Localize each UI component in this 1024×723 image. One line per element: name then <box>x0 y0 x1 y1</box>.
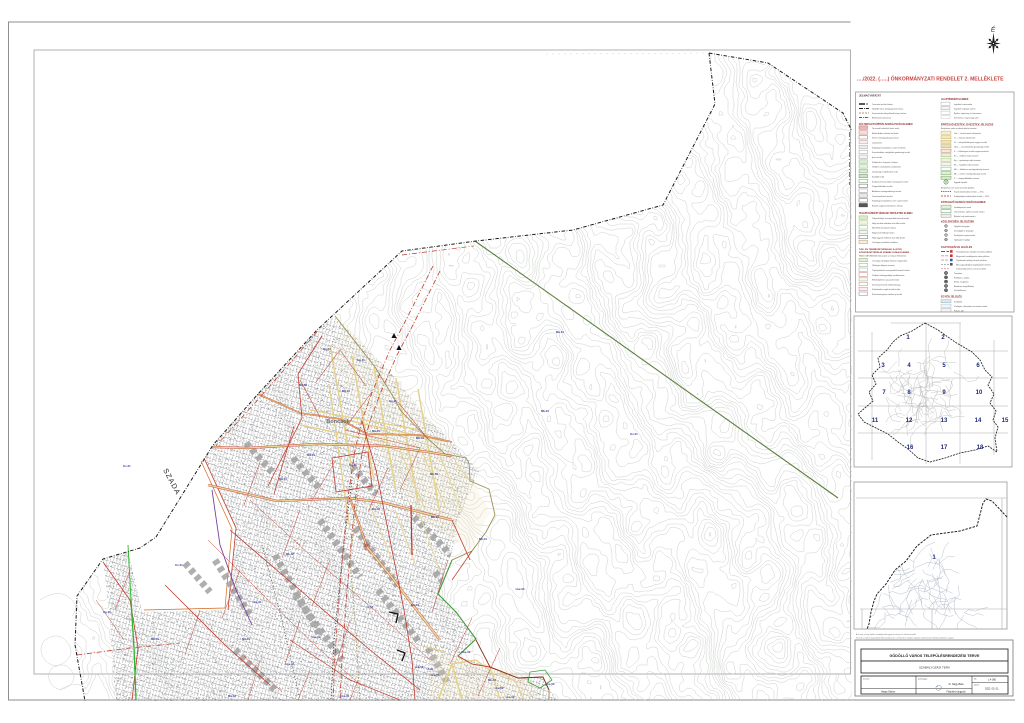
svg-text:Országos műemléki védelem: Országos műemléki védelem <box>872 242 898 244</box>
svg-text:dátum:: dátum: <box>974 684 980 687</box>
svg-text:Mk-01: Mk-01 <box>430 472 438 476</box>
svg-text:Gyűjtőút tengelye: Gyűjtőút tengelye <box>954 225 970 228</box>
svg-text:Lke-01: Lke-01 <box>286 662 295 666</box>
svg-text:Épület, építmény és házszáma: Épület, építmény és házszáma <box>954 112 982 115</box>
svg-text:Lke-02: Lke-02 <box>495 686 504 690</box>
svg-text:Má-01: Má-01 <box>556 330 564 334</box>
svg-text:Mk-01: Mk-01 <box>342 389 350 393</box>
svg-text:12: 12 <box>906 418 913 424</box>
svg-text:Településképi szempontból kiem: Településképi szempontból kiemelt terüle… <box>872 217 909 220</box>
svg-text:Má-01: Má-01 <box>372 429 380 433</box>
svg-text:É: É <box>991 25 996 34</box>
svg-text:Beépítésre nem szánt övezetek: Beépítésre nem szánt övezetek jelölése <box>941 187 974 190</box>
svg-text:14: 14 <box>975 418 982 424</box>
svg-text:Eg-01: Eg-01 <box>103 610 111 614</box>
svg-text:Gksz — kereskedelmi gazdasági: Gksz — kereskedelmi gazdasági terület <box>954 145 990 148</box>
svg-text:16: 16 <box>907 445 914 451</box>
svg-text:TELEPÜLÉSKÉPI VÉDELMI TERÜLETE: TELEPÜLÉSKÉPI VÉDELMI TERÜLETEK ELEMEI <box>859 212 913 215</box>
svg-text:Építési hely határvonala: Építési hely határvonala <box>954 215 976 218</box>
svg-text:Vasútállomás: Vasútállomás <box>954 289 966 292</box>
svg-text:Természetközeli terület: Természetközeli terület <box>872 195 893 198</box>
svg-text:Ingatlan helyrajzi száma: Ingatlan helyrajzi száma <box>954 107 976 110</box>
svg-text:dr. Nagy Béla: dr. Nagy Béla <box>948 683 964 686</box>
svg-text:Különleges beépítésre szánt te: Különleges beépítésre szánt területek <box>872 146 905 149</box>
svg-text:Boncsok: Boncsok <box>326 419 351 425</box>
svg-text:Lf-01: Lf-01 <box>367 605 374 609</box>
svg-text:Ev-01: Ev-01 <box>630 432 638 436</box>
svg-text:Eg-01: Eg-01 <box>323 347 331 351</box>
svg-text:KÖZLEKEDÉSI JELÖLÉSEK: KÖZLEKEDÉSI JELÖLÉSEK <box>941 221 975 224</box>
svg-text:Beépítésre szánt területek épí: Beépítésre szánt területek építési öveze… <box>941 127 977 130</box>
svg-text:1:4 000: 1:4 000 <box>988 679 997 682</box>
svg-text:Szintvonal, magassági adat: Szintvonal, magassági adat <box>954 116 979 119</box>
svg-text:Eg-01: Eg-01 <box>349 463 357 467</box>
svg-text:Tervezési terület határa: Tervezési terület határa <box>872 103 894 106</box>
svg-text:Tervezett belterületi határ mó: Tervezett belterületi határ mód. <box>872 127 900 130</box>
svg-text:Kilátó, magasles: Kilátó, magasles <box>954 281 969 284</box>
svg-text:Védelmi rendeltetésű erdőterül: Védelmi rendeltetésű erdőterület <box>872 166 901 169</box>
svg-text:Vízfolyás, időszakos vízmosás: Vízfolyás, időszakos vízmosás medre <box>954 306 988 308</box>
svg-text:Lke-02: Lke-02 <box>462 650 471 654</box>
svg-text:Gödöllő város közigazgatási ha: Gödöllő város közigazgatási határa <box>872 108 904 111</box>
svg-text:Helyi egyedi védelem alatt áll: Helyi egyedi védelem alatt álló épület <box>872 236 905 239</box>
svg-text:15: 15 <box>1002 418 1009 424</box>
svg-text:Burkolt vagy fásított köztér,: Burkolt vagy fásított köztér, sétány <box>872 205 902 208</box>
svg-text:Tervlaphatáron átnyúló övezete: Tervlaphatáron átnyúló övezetek jelölése <box>956 251 993 254</box>
svg-text:M=: M= <box>974 679 977 681</box>
svg-text:Közúti közlekedési terület — K: Közúti közlekedési terület — KÖu <box>954 190 984 193</box>
svg-text:…./2022. (…..) ÖNKORMÁNYZATI R: …./2022. (…..) ÖNKORMÁNYZATI RENDELET 2.… <box>857 75 1005 83</box>
svg-text:Közjóléti erdő: Közjóléti erdő <box>872 175 885 178</box>
svg-text:Belterületi határvonal: Belterületi határvonal <box>872 117 891 120</box>
svg-text:18: 18 <box>977 445 984 451</box>
svg-text:Felszínmozgásra érzékeny terül: Felszínmozgásra érzékeny terület <box>872 293 902 296</box>
svg-text:Má-01: Má-01 <box>307 453 315 457</box>
svg-text:Lke-03: Lke-03 <box>516 587 525 591</box>
svg-text:Egyedi tájérték: Egyedi tájérték <box>954 181 967 184</box>
svg-text:Lke-02: Lke-02 <box>506 695 515 699</box>
svg-text:NSA és NATURA 2000 hálózat (: NSA és NATURA 2000 hálózat (jele a tervl… <box>859 255 907 258</box>
svg-text:ÉPÍTÉSI ÖVEZETEK, ÖVEZETEK JEL: ÉPÍTÉSI ÖVEZETEK, ÖVEZETEK JELÖLÉSE <box>941 124 994 127</box>
svg-text:Ek — közjóléti erdő övezete: Ek — közjóléti erdő övezete <box>954 163 980 166</box>
svg-text:Készült az állami alapadatok f: Készült az állami alapadatok felhasználá… <box>856 637 955 640</box>
svg-text:Vízbázis hidrogeológiai védőöv: Vízbázis hidrogeológiai védőövezete <box>872 274 905 277</box>
svg-text:Mk-01: Mk-01 <box>151 637 159 641</box>
svg-text:Műemléki környezet határa: Műemléki környezet határa <box>872 227 897 230</box>
svg-text:Kertes mezőgazdasági övezet: Kertes mezőgazdasági övezet <box>872 137 899 140</box>
svg-text:Lf — falusias lakóterület: Lf — falusias lakóterület <box>954 136 976 139</box>
svg-text:Autóbusz megállóhely: Autóbusz megállóhely <box>954 285 974 288</box>
svg-text:KÜLTERÜLETI ÉPÍTÉSI SZABÁLYOZÁ: KÜLTERÜLETI ÉPÍTÉSI SZABÁLYOZÁSI ELEMEK <box>859 123 913 126</box>
svg-text:Mk — kertes mezőgazdasági övez: Mk — kertes mezőgazdasági övezet <box>954 172 987 175</box>
svg-text:Lke-01: Lke-01 <box>253 600 262 604</box>
svg-text:Vt — településközpont vegyes t: Vt — településközpont vegyes terület <box>954 141 987 144</box>
svg-text:TÁJI- ÉS TERMÉSZETVÉDELMI, ILL: TÁJI- ÉS TERMÉSZETVÉDELMI, ILLETVE <box>859 248 902 251</box>
svg-text:Má-01: Má-01 <box>279 477 287 481</box>
svg-text:17: 17 <box>941 445 948 451</box>
svg-text:Forrás, kút: Forrás, kút <box>954 309 964 312</box>
svg-text:V — vízgazdálkodási övezet: V — vízgazdálkodási övezet <box>954 177 980 180</box>
svg-text:Övezethatár, építési övezet ha: Övezethatár, építési övezet határa <box>954 210 985 213</box>
svg-text:Régészeti lelőhely határa: Régészeti lelőhely határa <box>872 231 895 234</box>
svg-text:Eg — gazdasági erdő övezete: Eg — gazdasági erdő övezete <box>954 159 982 162</box>
svg-text:Eg-01: Eg-01 <box>357 358 365 362</box>
svg-text:Lke-02: Lke-02 <box>415 665 424 669</box>
svg-text:Ev-01: Ev-01 <box>123 464 131 468</box>
svg-text:Mk-01: Mk-01 <box>416 436 424 440</box>
svg-text:Má — általános mezőgazdasági ö: Má — általános mezőgazdasági övezet <box>954 168 989 171</box>
svg-text:Helyi területi védelem alatt á: Helyi területi védelem alatt álló terüle… <box>872 222 906 225</box>
svg-text:Lke-01: Lke-01 <box>341 694 350 698</box>
svg-text:Ingatlan határvonala: Ingatlan határvonala <box>954 103 973 106</box>
svg-text:Kerékpárút nyomvonala: Kerékpárút nyomvonala <box>954 234 976 237</box>
svg-text:Ev — védelmi erdő övezete: Ev — védelmi erdő övezete <box>954 154 979 157</box>
svg-text:K — különleges terület megneve: K — különleges terület megnevezéssel <box>954 150 989 153</box>
svg-text:10: 10 <box>976 390 983 396</box>
svg-text:Tájékoztató jellegű elemek jel: Tájékoztató jellegű elemek jelölése <box>956 259 988 262</box>
svg-text:EGYÉB JELÖLÉS: EGYÉB JELÖLÉS <box>941 296 962 299</box>
svg-text:Lakóterület: Lakóterület <box>872 141 882 144</box>
svg-text:Lke-01: Lke-01 <box>431 673 440 677</box>
svg-text:Főépítész (jegyző): Főépítész (jegyző) <box>947 691 966 694</box>
svg-text:Megszűnő szabályozási elem jel: Megszűnő szabályozási elem jelölése <box>956 256 990 258</box>
svg-text:Vízgazdálkodási terület: Vízgazdálkodási terület <box>872 185 893 188</box>
svg-text:Út-01: Út-01 <box>427 666 434 671</box>
svg-text:Mk-01: Mk-01 <box>479 537 487 541</box>
svg-text:Zöldterület - közpark, közkert: Zöldterület - közpark, közkert <box>872 161 898 164</box>
svg-text:KÖTELEZŐ SZABÁLYOZÁSI ELEMEK: KÖTELEZŐ SZABÁLYOZÁSI ELEMEK <box>941 201 986 204</box>
svg-text:Má-01: Má-01 <box>411 603 419 607</box>
svg-text:Mk-01: Mk-01 <box>541 409 549 413</box>
svg-text:Mk-02: Mk-02 <box>286 552 294 556</box>
svg-text:SZABÁLYOZÁSI TERV: SZABÁLYOZÁSI TERV <box>919 666 950 670</box>
svg-text:Mk-01: Mk-01 <box>431 515 439 519</box>
svg-text:Különleges beépítésre nem szán: Különleges beépítésre nem szánt terület <box>872 200 908 203</box>
svg-text:Gyalogút tengelye: Gyalogút tengelye <box>954 239 971 242</box>
svg-text:Ev-01: Ev-01 <box>175 563 183 567</box>
svg-text:2022. 03. 01.: 2022. 03. 01. <box>985 688 999 691</box>
svg-text:jóváhagyta:: jóváhagyta: <box>917 678 928 681</box>
svg-text:Mk-01: Mk-01 <box>488 678 496 682</box>
svg-text:Közlekedési zajjal terhelt ter: Közlekedési zajjal terhelt terület <box>872 288 901 291</box>
svg-text:Korlátozott használatú mezőgaz: Korlátozott használatú mezőgazd. terület <box>872 180 909 183</box>
svg-text:Országos ökológiai hálózat mag: Országos ökológiai hálózat magterülete <box>872 259 908 262</box>
svg-text:Erdőtelepítésre javasolt terül: Erdőtelepítésre javasolt terület <box>872 279 899 282</box>
svg-text:Má-01: Má-01 <box>242 637 250 641</box>
svg-text:Má-02: Má-02 <box>228 694 236 698</box>
svg-text:KARTOGRÁFIAI JELÖLÉS: KARTOGRÁFIAI JELÖLÉS <box>941 246 973 249</box>
svg-text:GÖDÖLLŐ VÁROS TELEPÜLÉSRENDEZÉ: GÖDÖLLŐ VÁROS TELEPÜLÉSRENDEZÉSI TERVE <box>890 653 980 658</box>
svg-text:13: 13 <box>941 418 948 424</box>
svg-text:Lke-02: Lke-02 <box>312 635 321 639</box>
svg-text:JELMAGYARÁZAT: JELMAGYARÁZAT <box>859 95 881 98</box>
svg-text:Templom: Templom <box>954 273 962 275</box>
svg-text:Vízfelület: Vízfelület <box>954 300 963 303</box>
svg-text:Kiszolgáló út tengelye: Kiszolgáló út tengelye <box>954 230 974 233</box>
svg-text:KÖRNYEZETVÉDELMI SZABÁLYOZÁSI: KÖRNYEZETVÉDELMI SZABÁLYOZÁSI ELEMEK <box>859 251 910 254</box>
svg-text:Tájképvédelmi szempontból kiem: Tájképvédelmi szempontból kiemelt terüle… <box>872 269 910 272</box>
svg-text:Távlati fejlesztésre szánt ter: Távlati fejlesztésre szánt területek <box>956 268 986 271</box>
svg-text:Belterületbe vonható területek: Belterületbe vonható területek <box>872 132 899 135</box>
svg-text:Szennyvíztisztító védőtávolság: Szennyvíztisztító védőtávolsága <box>872 283 901 286</box>
svg-text:tervező:: tervező: <box>863 678 870 681</box>
svg-text:Általános mezőgazdasági övezet: Általános mezőgazdasági övezet <box>872 190 902 193</box>
svg-text:Más jogszabállyal megállapítot: Más jogszabállyal megállapított elemek <box>956 263 991 266</box>
svg-text:Ipari terület: Ipari terület <box>872 156 882 159</box>
svg-text:Szabályozási vonal: Szabályozási vonal <box>954 207 972 209</box>
svg-text:Má-03: Má-03 <box>372 507 380 511</box>
svg-text:Ökológiai folyosó övezete: Ökológiai folyosó övezete <box>872 264 896 267</box>
svg-text:Lke — kertvárosias lakóterület: Lke — kertvárosias lakóterület <box>954 132 981 135</box>
svg-text:Kereskedelmi szolgáltató gazda: Kereskedelmi szolgáltató gazdasági terül… <box>872 151 910 154</box>
svg-text:Kötöttpályás közlekedési terül: Kötöttpályás közlekedési terület — KÖk <box>954 195 989 198</box>
svg-text:A tervlap a helyi építési szab: A tervlap a helyi építési szabályzattal … <box>856 633 916 636</box>
svg-text:Szomszédos települések közig.: Szomszédos települések közig. határa <box>872 112 907 115</box>
svg-text:Varga Gábor: Varga Gábor <box>881 691 895 694</box>
svg-text:Lke-03: Lke-03 <box>546 682 555 686</box>
svg-text:ALAPTÉRKÉPI ELEMEK: ALAPTÉRKÉPI ELEMEK <box>941 98 969 101</box>
svg-text:Gazdasági rendeltetésű erdő: Gazdasági rendeltetésű erdő <box>872 171 899 174</box>
svg-text:11: 11 <box>872 418 879 424</box>
svg-text:Eg-01: Eg-01 <box>389 399 397 403</box>
svg-text:Mk-03: Mk-03 <box>299 383 307 387</box>
svg-text:Emlékmű, szobor: Emlékmű, szobor <box>954 277 970 279</box>
